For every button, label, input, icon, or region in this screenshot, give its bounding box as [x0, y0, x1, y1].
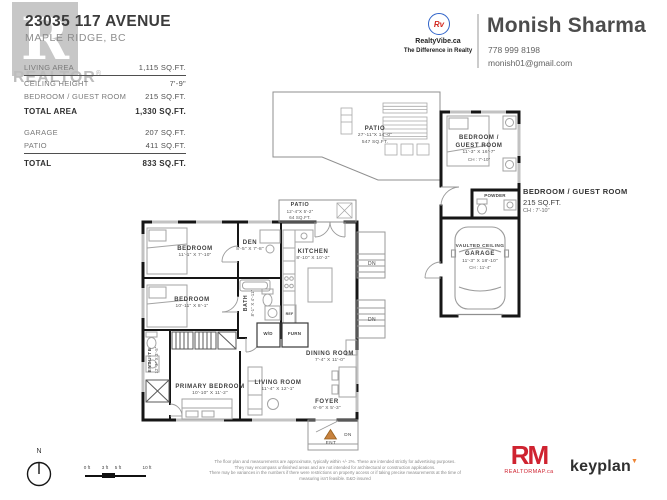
closet-label-furn: FURN — [281, 331, 308, 336]
agent-name: Monish Sharma — [487, 14, 646, 38]
stairs-down-label-1: DN — [362, 261, 382, 267]
divider — [24, 75, 186, 76]
room-label-primary-bedroom: PRIMARY BEDROOM 10'-10" X 11'-2" — [168, 383, 252, 398]
room-label-guest-bedroom: BEDROOM / GUEST ROOM 11'-3" X 16'-7" CH … — [441, 134, 517, 163]
table-row-total-area: TOTAL AREA1,330 SQ.FT. — [24, 103, 186, 119]
scale-bar-segment — [85, 475, 102, 477]
bed-icon-primary — [182, 399, 232, 419]
porch-down-label: DN — [340, 432, 356, 437]
entry-arrow-icon — [325, 430, 337, 440]
room-label-dining-room: DINING ROOM 7'-4" X 11'-0" — [295, 350, 365, 365]
room-label-den: DEN 8'-5" X 7'-8" — [215, 239, 285, 254]
north-label: N — [34, 448, 44, 455]
table-row: CEILING HEIGHT7'-9" — [24, 77, 186, 90]
keyplan-triangle-icon: ▼ — [631, 458, 638, 465]
realtormap-logo: RM REALTORMAP.ca — [503, 443, 555, 475]
room-label-kitchen: KITCHEN 8'-10" X 10'-2" — [278, 248, 348, 263]
realtormap-logo-sub: REALTORMAP.ca — [503, 469, 555, 475]
spacer — [24, 119, 186, 126]
table-row: GARAGE207 SQ.FT. — [24, 126, 186, 139]
room-label-foyer: FOYER 6'-9" X 5'-3" — [292, 398, 362, 413]
room-label-ensuite: ENSUITE 12'-3" X 3'-5" — [148, 334, 164, 386]
table-row: PATIO411 SQ.FT. — [24, 139, 186, 152]
divider — [24, 153, 186, 154]
page-title-address: 23035 117 AVENUE — [25, 13, 171, 31]
room-label-living-room: LIVING ROOM 11'-4" X 12'-1" — [243, 379, 313, 394]
wardrobe-icons — [172, 332, 236, 349]
guest-room-callout: BEDROOM / GUEST ROOM 215 SQ.FT. CH : 7'-… — [523, 187, 628, 214]
stairs-upper — [357, 232, 385, 278]
table-row: BEDROOM / GUEST ROOM215 SQ.FT. — [24, 90, 186, 103]
north-compass-icon — [28, 463, 51, 486]
fridge-label: REF — [283, 312, 296, 316]
disclaimer-text: The floor plan and measurements are appr… — [202, 459, 468, 481]
garage-door-swing — [425, 262, 441, 278]
room-label-garage: VAULTED CEILING GARAGE 11'-3" X 18'-10" … — [443, 244, 517, 271]
page-subtitle-city: MAPLE RIDGE, BC — [25, 32, 126, 44]
room-label-patio-lower: PATIO 12'-4"X 5'-2" 64 SQ.FT. — [270, 202, 330, 221]
realtyvibe-logo-icon: Rv — [428, 13, 450, 35]
dining-table-icon — [332, 340, 357, 397]
powder-fixture-icons — [477, 199, 516, 214]
room-label-patio-upper: PATIO 27'-11"X 14'-0" 547 SQ.FT. — [340, 125, 410, 146]
scale-tick-label: 0 ft — [79, 465, 95, 470]
table-row-total: TOTAL833 SQ.FT. — [24, 155, 186, 171]
room-label-powder: POWDER — [473, 193, 517, 198]
agent-email: monish01@gmail.com — [488, 58, 572, 68]
floor-plan-sheet: R REALTOR® 23035 117 AVENUE MAPLE RIDGE,… — [0, 0, 667, 500]
scale-bar-segment — [102, 473, 115, 478]
scale-tick-label: 10 ft — [139, 465, 155, 470]
table-row: LIVING AREA1,115 SQ.FT. — [24, 61, 186, 74]
divider — [477, 14, 479, 68]
scale-tick-label: 5 ft — [110, 465, 126, 470]
realtormap-logo-letters: RM — [503, 443, 555, 468]
room-label-bedroom2: BEDROOM 10'-11" X 8'-1" — [155, 296, 229, 311]
lower-patio-planter-icon — [337, 203, 352, 218]
entry-label: ENT — [320, 440, 342, 445]
keyplan-logo: keyplan▼ — [570, 458, 638, 476]
area-summary-table: LIVING AREA1,115 SQ.FT. CEILING HEIGHT7'… — [24, 61, 186, 171]
stairs-down-label-2: DN — [362, 317, 382, 323]
agent-phone: 778 999 8198 — [488, 45, 540, 55]
suite-door-swing — [441, 187, 459, 206]
closet-label-wd: W/D — [256, 331, 280, 336]
room-label-bath: BATH 8'-1" X 4'-11" — [243, 281, 261, 325]
brand-name: RealtyVibe.ca — [390, 38, 486, 45]
scale-bar-segment — [115, 475, 146, 477]
